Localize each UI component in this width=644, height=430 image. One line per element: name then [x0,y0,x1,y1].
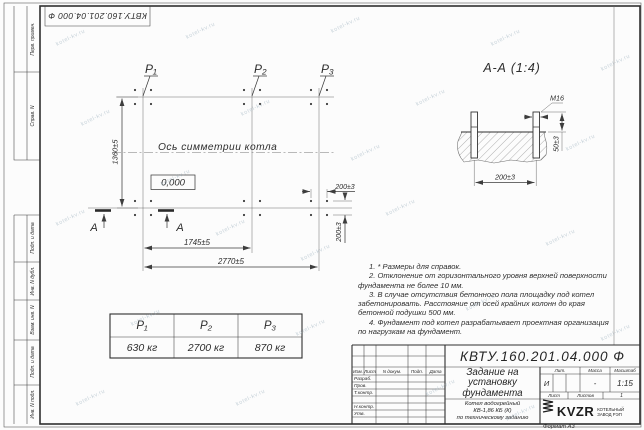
drawing-sheet: P₁ P₂ P₃ Ось симметрии котла 0,000 1360±… [0,0,644,430]
row-utv: Утв. [354,411,365,418]
foundation-plan: P₁ P₂ P₃ Ось симметрии котла 0,000 1360±… [88,62,355,271]
corner-designation: КВТУ.160.201.04.000 Ф [45,6,150,26]
load-value-p1: 630 кг [110,337,174,358]
load-table-header-p3: P₃ [238,314,302,337]
mass-label: Масса [580,367,610,374]
row-prov: Пров. [354,383,367,390]
title-block-designation: КВТУ.160.201.04.000 Ф [445,345,640,367]
col-n-dokum: N докум. [376,367,408,375]
section-view-a-a: А-А (1:4) М16 50±3 200±3 [457,61,566,186]
document-title: Задание на установку фундамента [445,368,540,399]
elevation-mark: 0,000 [161,178,185,189]
section-letter: А [89,222,97,234]
section-letter: А [175,222,183,234]
product-name: Котел водогрейный КВ-1,86 КБ (К) по техн… [445,401,540,422]
lit-label: Лит. [540,367,580,374]
note-3: 3. В случае отсутствия бетонного пола пл… [358,290,612,318]
mass-value: - [580,374,610,392]
anchor-bolt [533,112,540,158]
company-name-line: ЗАВОД РЭП [597,412,624,417]
scale-label: Масштаб [610,367,640,374]
stamp-inv-dubl: Инв. N дубл. [30,267,36,296]
company-name: КОТЕЛЬНЫЙ ЗАВОД РЭП [597,407,624,417]
stamp-inv-podl: Инв. N подл. [30,389,36,418]
note-1: 1. * Размеры для справок. [358,262,612,271]
scale-value: 1:15 [610,374,640,392]
stamp-perv-primen: Перв. примен. [30,22,36,55]
stamp-vzam-inv: Взам. инв. N [30,305,36,334]
stamp-podp-data-2: Подп. и дата [30,346,36,377]
section-cut-marks: А А [89,211,183,235]
load-value-p3: 870 кг [238,337,302,358]
row-tkontr: Т.контр. [354,390,373,397]
row-razrab: Разраб. [354,376,371,383]
product-name-line: Котел водогрейный [445,401,540,408]
load-value-p2: 2700 кг [174,337,238,358]
notes-block: 1. * Размеры для справок. 2. Отклонение … [358,262,612,336]
dim-span-p1-p2: 1745±5 [184,238,211,247]
spring-icon [541,399,555,414]
section-view-title: А-А (1:4) [482,61,540,75]
sheets-label: Листов [568,392,603,399]
load-point-label-p3: P₃ [321,62,334,76]
dim-height: 1360±5 [111,139,120,165]
thread-label: М16 [550,94,564,103]
symmetry-axis-label: Ось симметрии котла [158,142,277,153]
dim-span-total: 2770±5 [217,257,245,266]
format-note: Формат А3 [543,424,575,430]
col-podp: Подп. [408,367,426,375]
company-logo-text: KVZR [557,404,594,419]
stamp-sprav-n: Справ. N [30,106,36,127]
col-izm: Изм. [352,367,364,375]
load-point-label-p1: P₁ [145,62,157,76]
col-list: Лист [364,367,376,375]
load-table-header-p2: P₂ [174,314,238,337]
product-name-line: по техническому заданию [445,415,540,422]
load-point-label-p2: P₂ [254,62,267,76]
dim-bolt-spacing-x: 200±3 [334,184,355,191]
row-nkontr: Н.контр. [354,404,374,411]
product-name-line: КВ-1,86 КБ (К) [445,408,540,415]
document-title-line: фундамента [445,389,540,399]
lit-value: И [540,374,553,392]
note-2: 2. Отклонение от горизонтального уровня … [358,271,612,290]
dim-bolt-spacing-section: 200±3 [494,173,515,182]
note-4: 4. Фундамент под котел разрабатывает про… [358,318,612,337]
dim-protrusion: 50±3 [554,136,561,152]
stamp-podp-data-1: Подп. и дата [30,222,36,253]
dim-bolt-spacing-y: 200±3 [336,222,343,243]
anchor-bolt [471,112,478,158]
load-table-header-p1: P₁ [110,314,174,337]
company-logo: KVZR КОТЕЛЬНЫЙ ЗАВОД РЭП [541,399,640,424]
col-data: Дата [426,367,445,375]
sheet-label: Лист [540,392,568,399]
sheets-value: 1 [603,392,640,399]
